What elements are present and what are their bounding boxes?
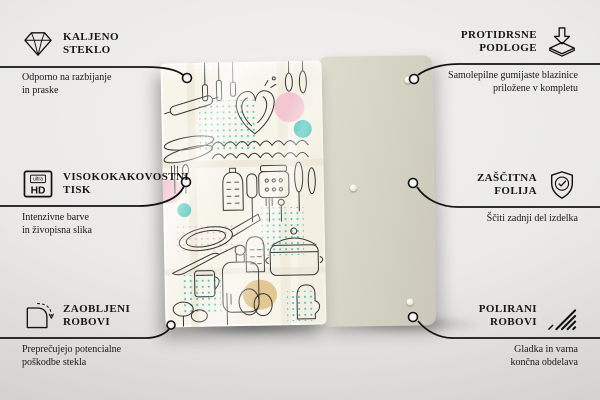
callout-title: ZAŠČITNA FOLIJA xyxy=(477,172,537,198)
anti-slip-pad xyxy=(407,299,414,306)
callout-title: PROTIDRSNE PODLOGE xyxy=(461,29,537,55)
callout-title: ZAOBLJENI ROBOVI xyxy=(63,303,130,329)
anti-slip-pad xyxy=(350,184,357,191)
callout-high-quality-print: ultra HD VISOKOKAKOVOSTNI TISK Intenzivn… xyxy=(0,168,189,237)
callout-title: POLIRANI ROBOVI xyxy=(479,303,537,329)
diamond-icon xyxy=(22,28,54,60)
shield-check-icon xyxy=(546,169,578,201)
callout-protective-film: ZAŠČITNA FOLIJA Ščiti zadnji del izdelka xyxy=(477,169,600,226)
callout-anti-slip-pads: PROTIDRSNE PODLOGE Samolepilne gumijaste… xyxy=(448,26,600,95)
product-back-panel xyxy=(318,55,436,327)
polished-edges-icon xyxy=(546,300,578,332)
callout-description: Gladka in varna končna obdelava xyxy=(479,344,578,369)
svg-text:ultra: ultra xyxy=(33,177,43,183)
callout-description: Intenzivne barve in živopisna slika xyxy=(22,212,189,237)
callout-description: Samolepilne gumijaste blazinice priložen… xyxy=(448,70,578,95)
callout-description: Ščiti zadnji del izdelka xyxy=(477,213,578,226)
callout-description: Odporno na razbijanje in praske xyxy=(22,72,119,97)
rounded-corner-icon xyxy=(22,300,54,332)
callout-title: VISOKOKAKOVOSTNI TISK xyxy=(63,171,189,197)
ultra-hd-icon: ultra HD xyxy=(22,168,54,200)
callout-rounded-edges: ZAOBLJENI ROBOVI Preprečujejo potencialn… xyxy=(0,300,130,369)
callout-polished-edges: POLIRANI ROBOVI Gladka in varna končna o… xyxy=(479,300,600,369)
non-slip-pads-icon xyxy=(546,26,578,58)
anti-slip-pad xyxy=(404,77,411,84)
callout-tempered-glass: KALJENO STEKLO Odporno na razbijanje in … xyxy=(0,28,119,97)
svg-text:HD: HD xyxy=(31,185,46,196)
callout-description: Preprečujejo potencialne poškodbe stekla xyxy=(22,344,130,369)
callout-title: KALJENO STEKLO xyxy=(63,31,119,57)
